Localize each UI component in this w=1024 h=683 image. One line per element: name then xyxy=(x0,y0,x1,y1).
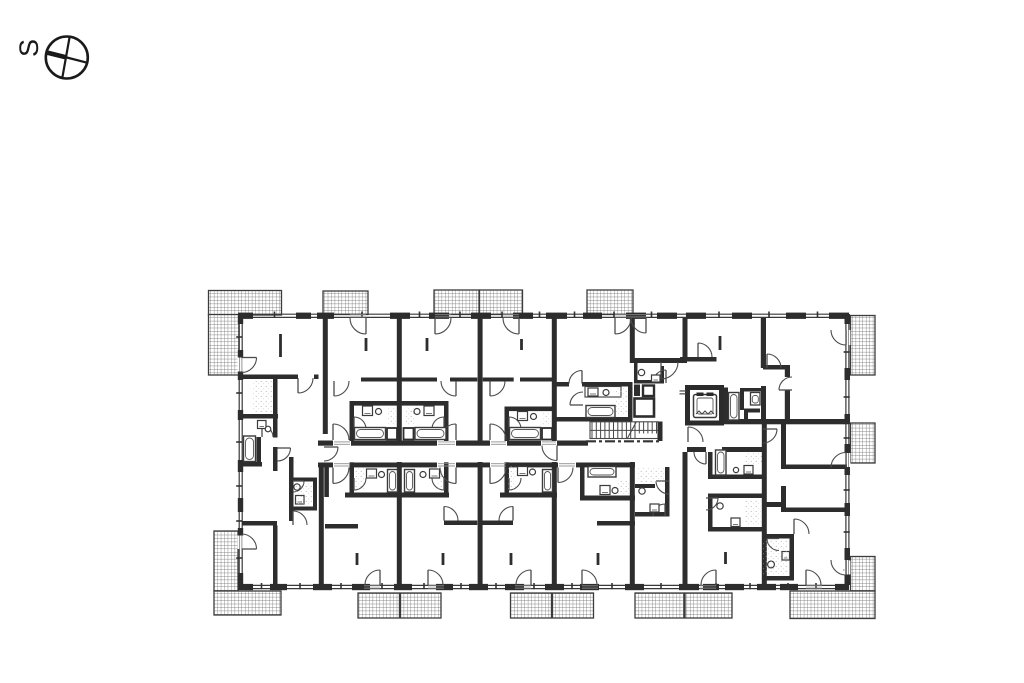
svg-text:S: S xyxy=(14,39,44,57)
